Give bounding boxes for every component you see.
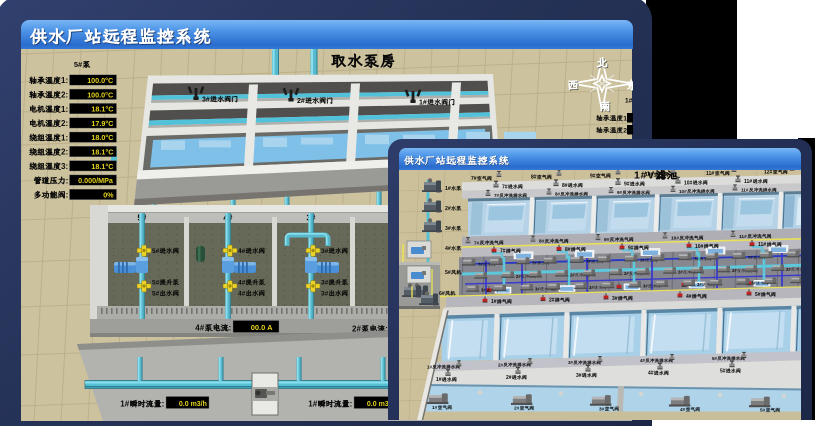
svg-text:1#: 1# <box>427 364 433 369</box>
svg-text:8#: 8# <box>565 247 571 253</box>
svg-text:3#: 3# <box>445 226 451 232</box>
svg-text:6#: 6# <box>439 291 445 297</box>
svg-text:7#: 7# <box>748 255 753 260</box>
svg-text:2:: 2: <box>61 119 68 128</box>
svg-text:8#: 8# <box>539 238 545 244</box>
svg-text:10#: 10# <box>679 188 687 193</box>
svg-text:3:: 3: <box>61 162 68 171</box>
svg-text:1#: 1# <box>419 99 427 106</box>
svg-text:17.9°C: 17.9°C <box>91 118 113 127</box>
svg-text:4#: 4# <box>238 248 246 255</box>
svg-text:0.000/MPa: 0.000/MPa <box>78 176 114 185</box>
svg-text:18.1°C: 18.1°C <box>91 161 113 170</box>
svg-text:9#: 9# <box>624 181 630 187</box>
svg-text:10#: 10# <box>645 172 654 178</box>
svg-text:9#: 9# <box>628 245 634 251</box>
svg-text:18.0°C: 18.0°C <box>91 133 113 142</box>
svg-text:7#: 7# <box>694 256 699 261</box>
svg-text:7#: 7# <box>471 176 477 182</box>
svg-text:11#: 11# <box>744 179 752 185</box>
svg-text:2:: 2: <box>61 90 68 99</box>
svg-text:5#: 5# <box>760 407 766 413</box>
svg-text:1:: 1: <box>61 76 68 85</box>
svg-text:5#: 5# <box>74 60 83 69</box>
svg-text:3#: 3# <box>599 406 605 412</box>
svg-text:7#: 7# <box>474 240 480 246</box>
svg-text:3#: 3# <box>576 372 582 378</box>
svg-text:0%: 0% <box>103 190 114 199</box>
svg-text:1#: 1# <box>445 186 451 192</box>
svg-text:2:: 2: <box>61 147 68 156</box>
svg-text:7#: 7# <box>586 259 591 264</box>
svg-text:7#: 7# <box>494 193 500 198</box>
svg-text:3#: 3# <box>589 284 594 289</box>
svg-text:2#: 2# <box>624 271 629 276</box>
svg-text:2#: 2# <box>514 405 520 411</box>
svg-text:2#: 2# <box>786 266 791 271</box>
svg-text:2#: 2# <box>549 297 555 303</box>
svg-text:3#: 3# <box>321 290 329 297</box>
svg-text::: : <box>229 323 232 332</box>
svg-text:10#: 10# <box>695 243 704 249</box>
svg-text:3#: 3# <box>643 283 648 288</box>
svg-text:2#: 2# <box>445 206 451 212</box>
svg-text:7#: 7# <box>500 248 506 254</box>
svg-text:9#: 9# <box>590 173 596 179</box>
svg-text:9#: 9# <box>617 190 623 195</box>
svg-text:3#: 3# <box>612 295 618 301</box>
svg-text:4#: 4# <box>680 407 686 413</box>
svg-text::: : <box>66 176 69 185</box>
svg-text:1:: 1: <box>61 104 68 113</box>
svg-text:0.0 m3/h: 0.0 m3/h <box>179 401 207 408</box>
svg-text:7#: 7# <box>478 261 483 266</box>
svg-text:8#: 8# <box>555 191 561 196</box>
svg-text:100.0°C: 100.0°C <box>87 76 113 85</box>
svg-text:1#: 1# <box>436 377 442 383</box>
svg-text:4#: 4# <box>238 290 246 297</box>
svg-text:7#: 7# <box>502 184 508 190</box>
svg-text:8#: 8# <box>531 174 537 180</box>
svg-text:1#: 1# <box>625 97 633 104</box>
svg-text:5#: 5# <box>152 279 160 286</box>
svg-text:3#: 3# <box>481 287 486 292</box>
svg-text:7#: 7# <box>640 257 645 262</box>
svg-text:1#: 1# <box>432 405 438 411</box>
svg-text:3#: 3# <box>697 282 702 287</box>
svg-text:10#: 10# <box>684 180 693 186</box>
svg-text:5#: 5# <box>712 355 718 360</box>
svg-text:2#: 2# <box>498 362 504 367</box>
svg-text:5#: 5# <box>755 292 761 298</box>
svg-text:2#: 2# <box>516 273 521 278</box>
svg-text:9#: 9# <box>604 237 610 243</box>
svg-text:4#: 4# <box>238 279 246 286</box>
svg-text:00.0 A: 00.0 A <box>251 323 273 332</box>
svg-text:5#: 5# <box>152 290 160 297</box>
svg-text:11#: 11# <box>741 187 749 192</box>
svg-text:4#: 4# <box>686 293 692 299</box>
svg-text:4#: 4# <box>445 246 451 252</box>
svg-text:2#: 2# <box>678 269 683 274</box>
svg-text:4#: 4# <box>648 370 654 376</box>
svg-text:3#: 3# <box>321 279 329 286</box>
svg-text:5#: 5# <box>720 368 726 374</box>
svg-text:1#: 1# <box>120 399 129 408</box>
svg-text:5#: 5# <box>445 270 451 276</box>
svg-text:2#: 2# <box>506 375 512 381</box>
svg-text:18.1°C: 18.1°C <box>91 104 113 113</box>
svg-text:8#: 8# <box>562 183 568 189</box>
svg-text:5#: 5# <box>152 248 160 255</box>
svg-text:18.1°C: 18.1°C <box>91 147 113 156</box>
svg-text:11#: 11# <box>706 170 714 176</box>
svg-text:2#: 2# <box>732 268 737 273</box>
svg-text:1:: 1: <box>61 133 68 142</box>
svg-text:3#: 3# <box>202 96 210 103</box>
svg-text:12#: 12# <box>764 170 773 176</box>
svg-text:1#: 1# <box>491 299 497 305</box>
svg-text:2#: 2# <box>297 98 305 105</box>
svg-text:7#: 7# <box>532 260 537 265</box>
svg-text::: : <box>162 399 165 408</box>
svg-text:10#: 10# <box>671 235 679 241</box>
svg-text::: : <box>66 190 69 199</box>
svg-text:11#: 11# <box>739 233 747 239</box>
svg-text:4#: 4# <box>195 323 204 332</box>
svg-text:3#: 3# <box>535 286 540 291</box>
svg-text:4#: 4# <box>640 358 646 363</box>
svg-text:3#: 3# <box>568 360 574 365</box>
svg-text::: : <box>350 399 353 408</box>
svg-text:2#: 2# <box>570 272 575 277</box>
svg-text:11#: 11# <box>758 242 766 248</box>
svg-text:1#: 1# <box>308 399 317 408</box>
svg-text:3#: 3# <box>751 280 756 285</box>
svg-text:3#: 3# <box>321 248 329 255</box>
svg-text:100.0°C: 100.0°C <box>87 90 113 99</box>
